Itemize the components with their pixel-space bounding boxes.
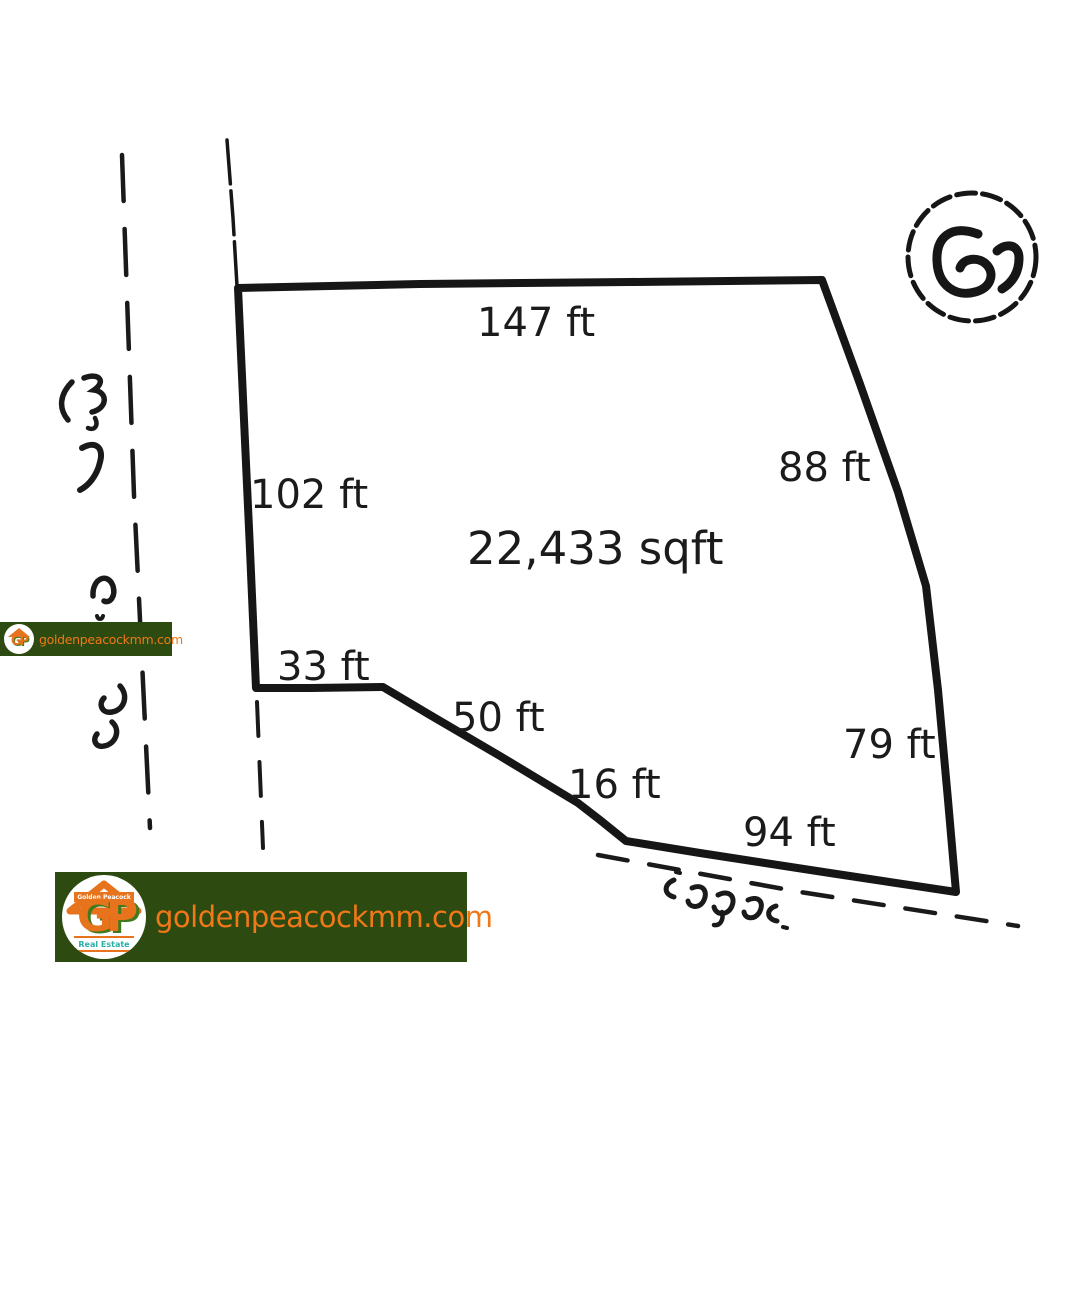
watermark-url-small: goldenpeacockmm.com (39, 632, 183, 647)
left-road-dashed-line (122, 155, 150, 828)
golden-peacock-logo-large: Golden Peacock GP Real Estate (62, 875, 146, 959)
area-label: 22,433 sqft (467, 522, 723, 575)
plot-number-circle (908, 193, 1036, 321)
tagline: Real Estate (74, 936, 134, 952)
side-length-label-top: 147 ft (477, 300, 595, 346)
watermark-strip-left: GP goldenpeacockmm.com (0, 622, 172, 656)
side-length-label-right-upper: 88 ft (778, 445, 871, 491)
golden-peacock-logo-small: GP (4, 624, 34, 654)
boundary-line-upper (227, 140, 237, 286)
side-length-label-inner-bottom: 33 ft (277, 644, 370, 690)
left-handwritten-annotation (62, 376, 125, 746)
side-length-label-bottom: 94 ft (743, 810, 836, 856)
gp-initials: GP (62, 895, 146, 939)
watermark-banner-bottom: Golden Peacock GP Real Estate goldenpeac… (55, 872, 467, 962)
side-length-label-slope-short: 16 ft (568, 762, 661, 808)
side-length-label-right-lower: 79 ft (843, 722, 936, 768)
boundary-continuation-dashed (257, 702, 263, 848)
scanned-survey-page: 147 ft 102 ft 88 ft 22,433 sqft 33 ft 50… (0, 0, 1080, 1310)
side-length-label-left: 102 ft (250, 472, 368, 518)
gp-initials: GP (4, 634, 34, 649)
side-length-label-slope-long: 50 ft (452, 695, 545, 741)
watermark-url-large: goldenpeacockmm.com (155, 872, 465, 962)
